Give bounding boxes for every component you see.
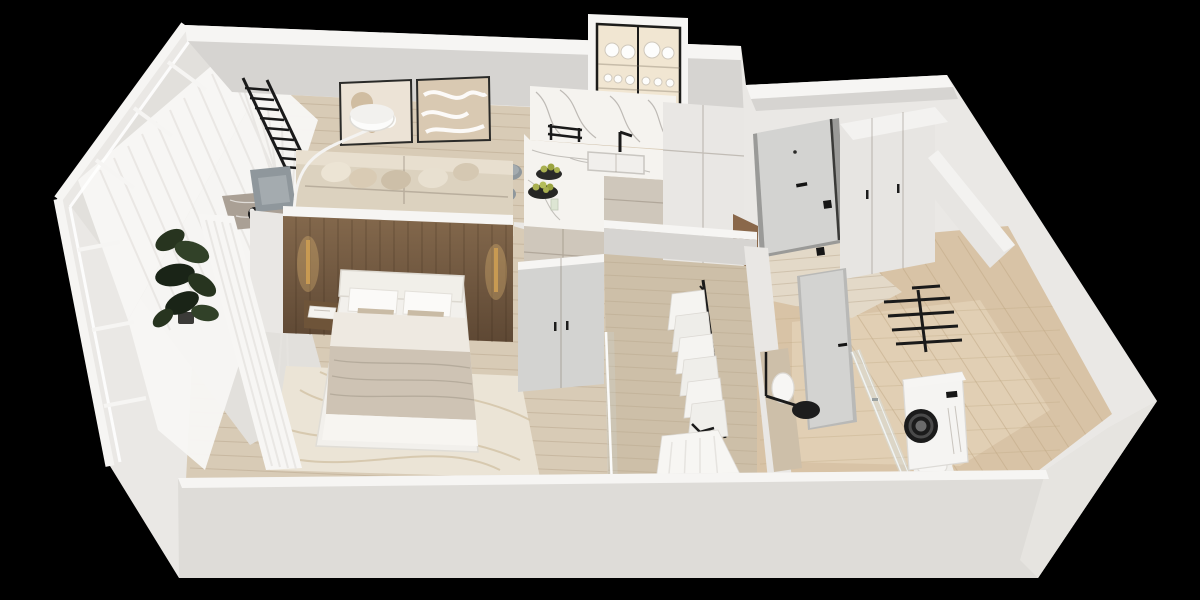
gray-armchair [250,166,296,212]
bed-blanket [326,346,476,420]
double-bed [316,270,478,452]
render-canvas [0,0,1200,600]
marble-backsplash [530,86,676,150]
front-door [753,118,846,258]
washing-machine [903,372,968,470]
corner-wardrobe [518,254,604,392]
floorplan-render [0,0,1200,600]
